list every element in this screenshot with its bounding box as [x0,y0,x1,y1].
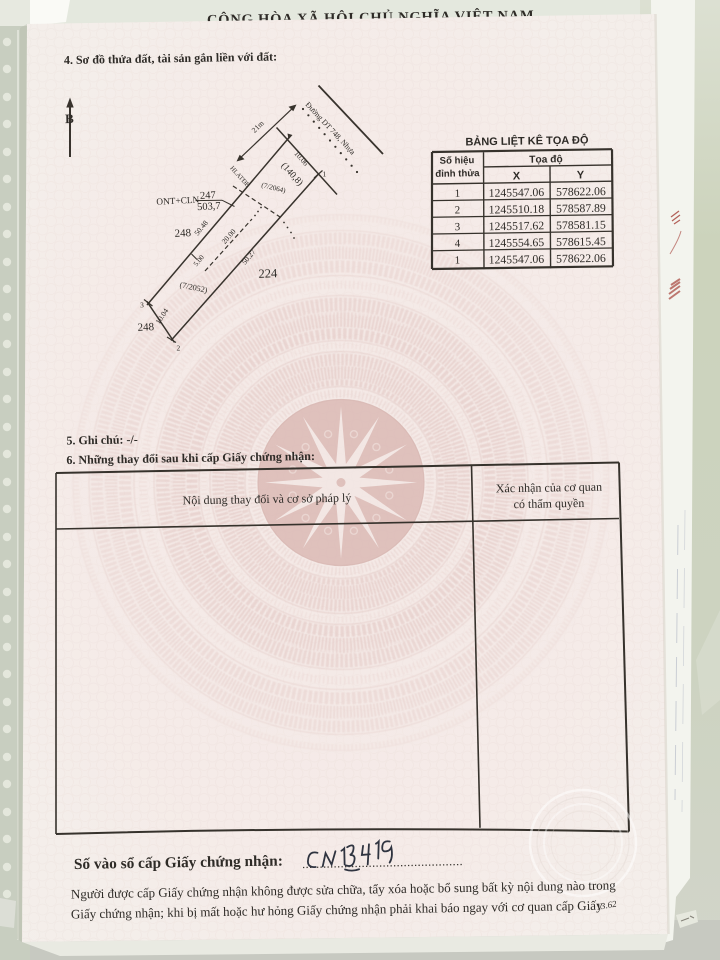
svg-text:224: 224 [258,266,278,281]
svg-text:1245547.06: 1245547.06 [489,186,545,200]
svg-text:X: X [513,170,521,182]
svg-text:1245510.18: 1245510.18 [489,203,545,217]
svg-text:5. Ghi chú: -/-: 5. Ghi chú: -/- [66,432,138,447]
svg-text:578587.89: 578587.89 [556,202,606,216]
svg-text:Số hiệu: Số hiệu [440,155,475,167]
svg-text:Tọa độ: Tọa độ [529,154,563,166]
svg-text:BẢNG LIỆT KÊ TỌA ĐỘ: BẢNG LIỆT KÊ TỌA ĐỘ [465,133,589,148]
svg-text:578581.15: 578581.15 [556,218,606,232]
svg-text:1245554.65: 1245554.65 [489,236,545,250]
svg-text:1: 1 [455,188,461,200]
svg-text:Xác nhận của cơ quan: Xác nhận của cơ quan [496,480,603,496]
svg-text:đỉnh thửa: đỉnh thửa [435,168,480,180]
svg-text:có thẩm quyền: có thẩm quyền [513,496,584,511]
svg-text:2: 2 [176,343,180,352]
svg-text:1: 1 [322,169,326,178]
svg-text:2: 2 [455,204,461,216]
svg-text:248: 248 [137,321,155,334]
svg-text:578622.06: 578622.06 [556,185,606,199]
svg-text:4: 4 [455,238,461,250]
svg-text:Y: Y [577,169,585,181]
svg-text:3: 3 [140,300,144,309]
svg-text:1: 1 [455,255,461,267]
svg-text:Nội dung thay đổi và cơ sở phá: Nội dung thay đổi và cơ sở pháp lý [182,491,351,508]
svg-text:578622.06: 578622.06 [556,252,606,266]
svg-text:578615.45: 578615.45 [556,235,606,249]
svg-text:B: B [65,111,74,126]
svg-text:3: 3 [455,221,461,233]
svg-text:1245517.62: 1245517.62 [489,219,545,233]
svg-text:248: 248 [174,227,192,240]
svg-text:503,7: 503,7 [197,201,221,213]
svg-text:1245547.06: 1245547.06 [489,253,545,267]
svg-text:Số vào sổ cấp Giấy chứng nhận:: Số vào sổ cấp Giấy chứng nhận: [74,853,283,873]
